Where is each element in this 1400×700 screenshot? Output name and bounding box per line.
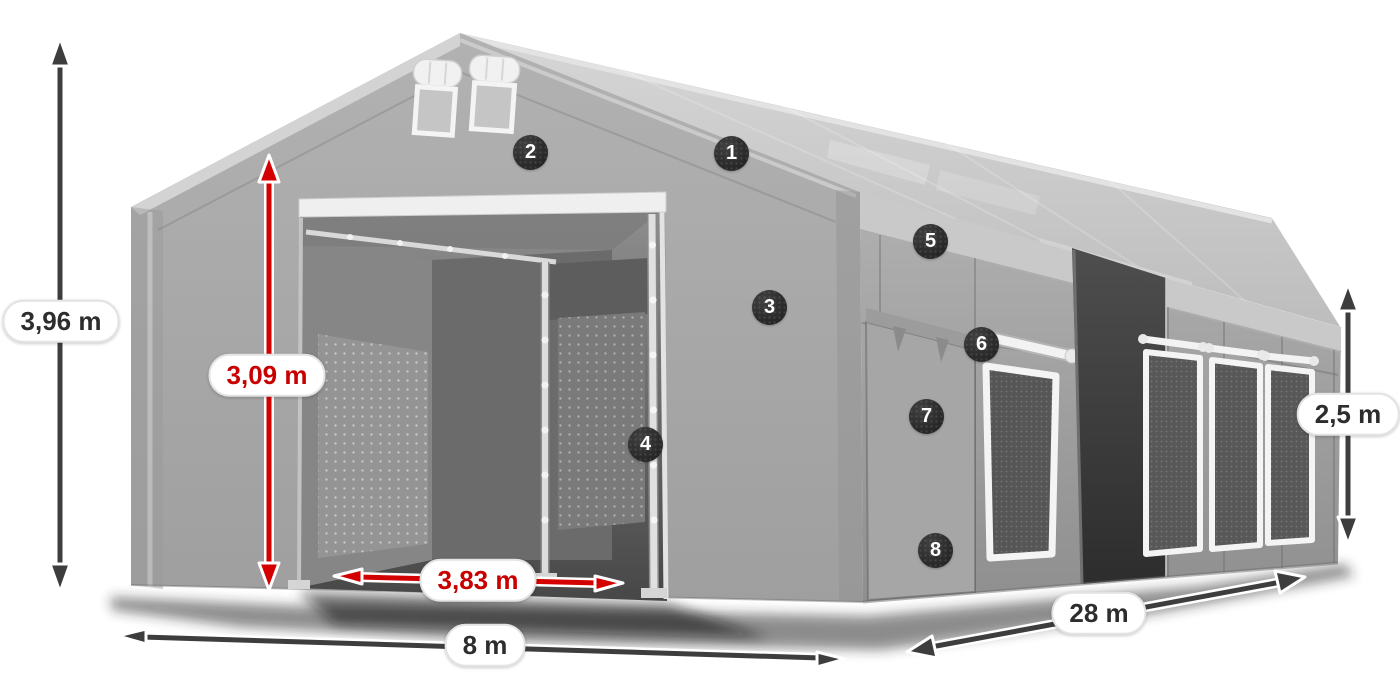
tent-front-entrance <box>288 192 667 601</box>
tent-illustration <box>0 0 1400 700</box>
feature-marker-7: 7 <box>909 399 944 434</box>
dimension-label-length: 28 m <box>1051 592 1146 635</box>
feature-marker-1: 1 <box>714 136 749 171</box>
interior-mesh-window-right <box>558 312 645 530</box>
feature-marker-2: 2 <box>513 135 548 170</box>
feature-marker-4: 4 <box>628 427 663 462</box>
feature-marker-3: 3 <box>752 290 787 325</box>
feature-marker-6: 6 <box>964 327 999 362</box>
dimension-label-total-height: 3,96 m <box>3 300 120 343</box>
feature-marker-8: 8 <box>918 533 953 568</box>
side-window <box>1260 351 1319 543</box>
dimension-label-entrance-width: 3,83 m <box>420 559 537 602</box>
tent-dimension-diagram: 3,96 m 3,09 m 3,83 m 8 m 28 m 2,5 m 1 2 … <box>0 0 1400 700</box>
dimension-label-side-wall-height: 2,5 m <box>1297 393 1400 436</box>
side-window <box>1138 334 1208 554</box>
side-window <box>1204 343 1267 549</box>
interior-mesh-window-left <box>318 334 428 558</box>
feature-marker-5: 5 <box>913 224 948 259</box>
dimension-label-entrance-height: 3,09 m <box>209 354 326 397</box>
dimension-label-gable-width: 8 m <box>445 624 526 667</box>
